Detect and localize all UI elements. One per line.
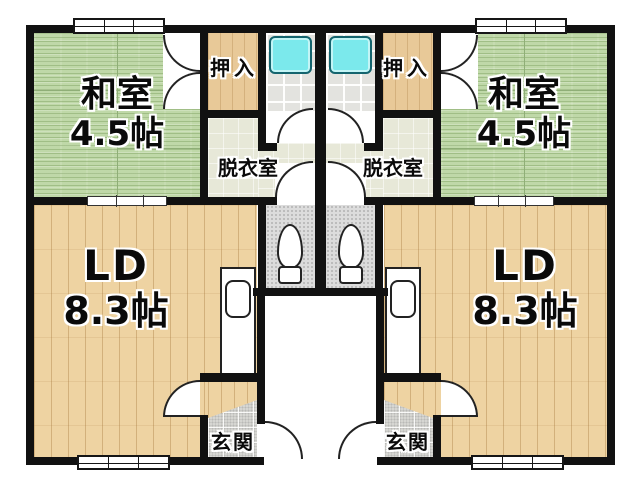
- floorplan: 和室 4.5帖 LD 8.3帖 押入 脱衣室 玄関 和室 4.5帖 LD 8.3…: [0, 0, 640, 493]
- unit-dividing-wall: [315, 25, 326, 296]
- toilet-icon: [339, 266, 363, 284]
- kitchen-sink-icon: [390, 280, 416, 318]
- sliding-door-tick: [525, 195, 526, 207]
- wall: [607, 25, 615, 465]
- room-size-washitsu-left: 4.5帖: [70, 117, 164, 151]
- sliding-door-symbol: [87, 196, 167, 206]
- room-label-washitsu-right: 和室: [488, 77, 560, 113]
- wall: [200, 373, 262, 382]
- toilet-icon: [278, 266, 302, 284]
- room-label-datsuishitsu-left: 脱衣室: [218, 158, 278, 178]
- wall: [433, 415, 441, 465]
- wall: [376, 288, 384, 424]
- wall: [257, 288, 265, 424]
- room-label-genkan-left: 玄関: [211, 432, 255, 452]
- room-size-ld-right: 8.3帖: [472, 292, 577, 330]
- wall: [258, 197, 266, 288]
- room-label-ld-right: LD: [492, 245, 558, 287]
- window-symbol: [73, 18, 165, 34]
- room-label-genkan-right: 玄関: [386, 432, 430, 452]
- room-label-oshiire-left: 押入: [210, 58, 258, 78]
- window-mullion: [502, 457, 503, 468]
- wall: [364, 197, 441, 205]
- window-midline: [79, 463, 168, 464]
- window-mullion: [535, 20, 536, 32]
- window-mullion: [133, 20, 134, 32]
- window-midline: [473, 463, 562, 464]
- window-midline: [477, 26, 565, 27]
- wall: [379, 373, 441, 382]
- window-mullion: [506, 20, 507, 32]
- bathtub-icon: [269, 36, 312, 74]
- wall: [433, 25, 441, 205]
- wall: [253, 288, 388, 296]
- room-label-datsuishitsu-right: 脱衣室: [363, 158, 423, 178]
- room-label-oshiire-right: 押入: [383, 58, 431, 78]
- wall: [258, 33, 266, 143]
- wall: [208, 110, 258, 118]
- kitchen-sink-icon: [225, 280, 251, 318]
- wall: [375, 197, 383, 288]
- wall: [375, 33, 383, 143]
- window-midline: [75, 26, 163, 27]
- wall: [26, 25, 34, 465]
- wall: [364, 143, 383, 151]
- room-label-ld-left: LD: [83, 245, 149, 287]
- window-mullion: [108, 457, 109, 468]
- room-size-washitsu-right: 4.5帖: [477, 117, 571, 151]
- sliding-door-symbol: [474, 196, 554, 206]
- window-mullion: [104, 20, 105, 32]
- wall: [200, 415, 208, 465]
- window-symbol: [475, 18, 567, 34]
- wall: [200, 25, 208, 205]
- window-symbol: [77, 455, 170, 470]
- wall: [383, 110, 433, 118]
- wall: [258, 143, 277, 151]
- room-label-washitsu-left: 和室: [81, 77, 153, 113]
- window-mullion: [138, 457, 139, 468]
- sliding-door-tick: [143, 195, 144, 207]
- room-size-ld-left: 8.3帖: [63, 292, 168, 330]
- window-symbol: [471, 455, 564, 470]
- sliding-door-tick: [116, 195, 117, 207]
- bathtub-icon: [329, 36, 372, 74]
- wall: [200, 197, 277, 205]
- sliding-door-tick: [498, 195, 499, 207]
- window-mullion: [532, 457, 533, 468]
